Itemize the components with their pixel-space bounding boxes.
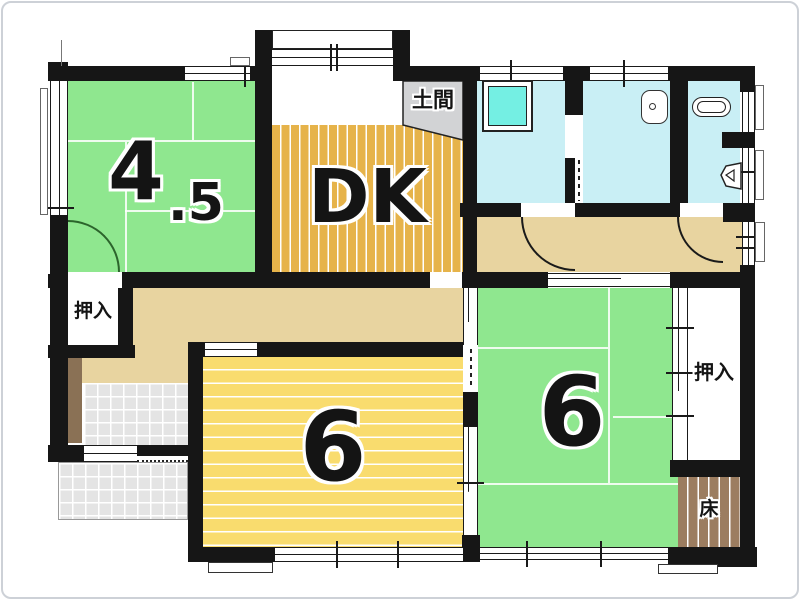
urinal-icon [719, 161, 743, 191]
window-tick [666, 415, 694, 417]
wall [462, 535, 480, 562]
window-tick [336, 44, 338, 71]
room-6-right-label: 6 [522, 364, 622, 460]
wall [257, 342, 463, 357]
window-tick [600, 541, 602, 567]
wall [723, 203, 755, 222]
shutter-box [755, 85, 764, 130]
tatami-line [192, 82, 194, 140]
window [480, 547, 668, 560]
opening-dashed-line [578, 160, 580, 201]
genkan-floor [272, 81, 403, 125]
wall [565, 81, 583, 115]
wall [670, 460, 740, 477]
sliding-door [463, 427, 478, 535]
room-4-5-sub-label: .5 [168, 177, 218, 229]
wall [48, 345, 135, 358]
wall [48, 62, 68, 81]
window-tick [336, 541, 338, 568]
corridor-floor [133, 288, 463, 345]
threshold-dotted [137, 456, 188, 462]
exterior-step [208, 562, 273, 573]
toilet-bowl-icon [697, 101, 726, 113]
wall [188, 342, 205, 357]
closet-left-label: 押入 [66, 302, 120, 321]
window [742, 222, 755, 265]
window-tick [526, 541, 528, 567]
entrance-porch-outline [272, 30, 393, 49]
window [50, 81, 68, 215]
wall [740, 265, 755, 567]
window-tick [44, 207, 74, 209]
window [275, 547, 463, 562]
window [480, 66, 563, 81]
wall [565, 158, 575, 203]
corridor-floor-c [82, 358, 135, 383]
shutter-box [230, 57, 250, 66]
tile-terrace-outer [58, 462, 188, 520]
wall [462, 272, 548, 288]
toko-label: 床 [686, 500, 732, 519]
door-opening [68, 272, 122, 288]
door-opening [430, 272, 462, 288]
wood-strip [68, 358, 82, 443]
wall [137, 445, 188, 456]
window [742, 92, 755, 132]
wall [460, 203, 521, 217]
window-tick [330, 44, 332, 71]
dk-label: DK [272, 160, 463, 234]
shutter-box [755, 222, 765, 262]
wall [122, 272, 430, 288]
window-tick [623, 60, 625, 87]
wall [740, 66, 755, 92]
wall [670, 81, 688, 203]
window-tick [666, 327, 694, 329]
terrace-opening [84, 445, 137, 462]
shutter-box [40, 88, 48, 215]
floor-plan: 4 .5 DK 土間 押入 押入 6 6 床 [0, 0, 800, 600]
window [590, 66, 668, 81]
wall [50, 215, 68, 462]
window [205, 342, 257, 357]
wall [463, 392, 478, 427]
entrance-sliding-door [272, 49, 393, 66]
shutter-box [755, 150, 764, 200]
wall [255, 66, 272, 272]
opening-dashed-line [470, 349, 472, 389]
window [185, 66, 250, 81]
wall [188, 547, 275, 562]
wall [48, 445, 84, 462]
wall [722, 132, 755, 148]
room-4-5-label: 4 [101, 132, 171, 212]
sliding-door [548, 273, 670, 287]
tile-terrace-inner [84, 383, 188, 445]
exterior-step [658, 564, 718, 574]
sliding-door [463, 288, 478, 345]
wall [575, 203, 680, 217]
door-opening [565, 115, 583, 158]
entrance-post [393, 30, 410, 81]
window-tick [457, 482, 484, 484]
closet-right-label: 押入 [686, 362, 742, 382]
wall [563, 66, 590, 81]
wall [68, 66, 185, 81]
doma-label: 土間 [400, 90, 466, 111]
room-6-center-label: 6 [283, 399, 383, 495]
corridor-floor-b [135, 345, 188, 383]
tatami-line [478, 347, 608, 349]
bathtub [488, 86, 527, 126]
washbasin-drain-icon [649, 103, 656, 110]
tatami-line [478, 483, 678, 485]
window [742, 148, 755, 203]
shutter-line [61, 40, 62, 66]
wall [670, 272, 755, 288]
wall [188, 342, 203, 562]
window-tick [397, 541, 399, 568]
